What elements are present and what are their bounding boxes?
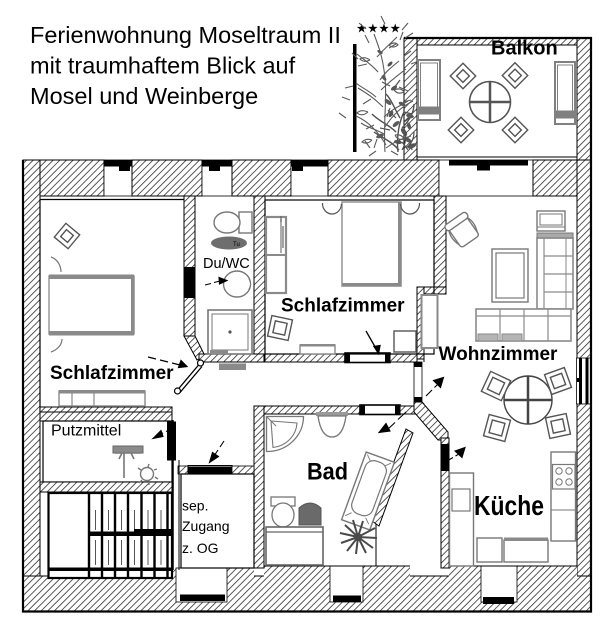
svg-text:Schlafzimmer: Schlafzimmer xyxy=(281,296,405,317)
svg-text:Zugang: Zugang xyxy=(182,518,229,534)
svg-text:Mosel und Weinberge: Mosel und Weinberge xyxy=(30,83,258,109)
svg-text:sep.: sep. xyxy=(182,498,208,514)
svg-text:z. OG: z. OG xyxy=(182,540,219,556)
svg-text:Ferienwohnung Moseltraum II: Ferienwohnung Moseltraum II xyxy=(30,22,341,48)
svg-text:★★★★: ★★★★ xyxy=(356,22,401,36)
svg-text:Küche: Küche xyxy=(474,490,544,521)
svg-text:mit traumhaftem Blick auf: mit traumhaftem Blick auf xyxy=(30,53,296,79)
svg-text:Balkon: Balkon xyxy=(491,38,558,60)
svg-text:Wohnzimmer: Wohnzimmer xyxy=(439,344,559,365)
svg-text:Bad: Bad xyxy=(307,459,348,486)
svg-text:Tu: Tu xyxy=(233,242,240,248)
svg-text:Schlafzimmer: Schlafzimmer xyxy=(50,363,174,384)
svg-text:Putzmittel: Putzmittel xyxy=(51,423,121,440)
svg-text:Du/WC: Du/WC xyxy=(203,256,250,272)
